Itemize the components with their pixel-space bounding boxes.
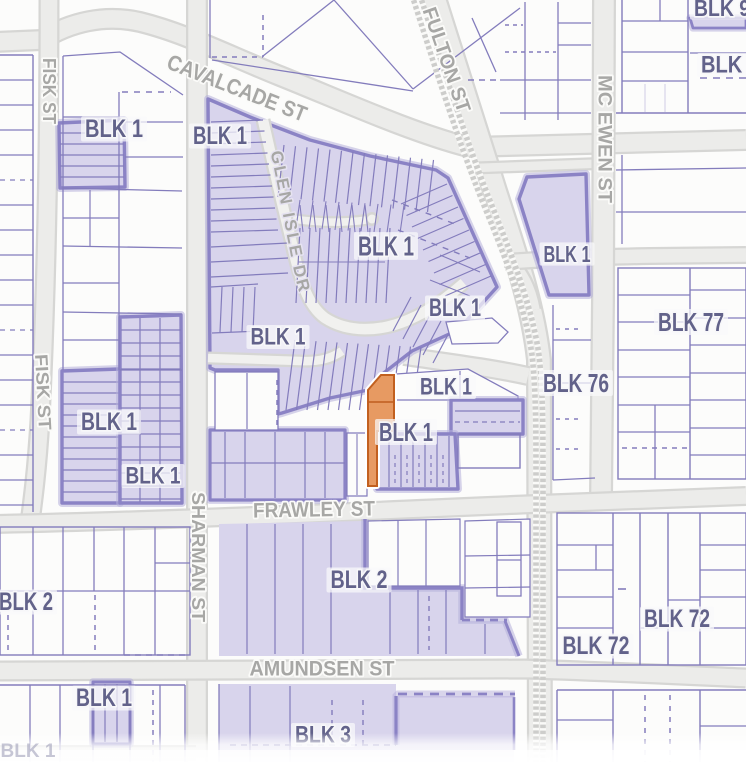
svg-text:BLK 1: BLK 1 <box>1 741 56 762</box>
svg-text:BLK 72: BLK 72 <box>644 605 710 633</box>
svg-text:BLK 1: BLK 1 <box>429 294 481 322</box>
svg-text:BLK 1: BLK 1 <box>420 374 472 401</box>
svg-text:BLK 72: BLK 72 <box>563 632 630 660</box>
svg-text:BLK 2: BLK 2 <box>331 566 388 594</box>
svg-text:BLK 1: BLK 1 <box>379 417 433 447</box>
svg-text:FISK ST: FISK ST <box>31 354 55 431</box>
svg-text:BLK 1: BLK 1 <box>358 231 414 262</box>
svg-text:BLK 1: BLK 1 <box>544 241 591 267</box>
svg-text:BLK 1: BLK 1 <box>251 324 306 351</box>
svg-text:BLK 77: BLK 77 <box>658 307 724 337</box>
svg-text:BLK 2: BLK 2 <box>0 588 53 616</box>
svg-text:MC EWEN ST: MC EWEN ST <box>594 75 615 203</box>
svg-text:BLK 76: BLK 76 <box>543 368 609 398</box>
svg-text:AMUNDSEN ST: AMUNDSEN ST <box>250 658 395 681</box>
svg-text:BLK 1: BLK 1 <box>126 463 181 490</box>
svg-text:BLK 1: BLK 1 <box>193 122 247 150</box>
svg-text:BLK 1: BLK 1 <box>81 408 137 436</box>
svg-text:BLK 9: BLK 9 <box>694 0 746 21</box>
svg-text:FRAWLEY ST: FRAWLEY ST <box>253 497 376 522</box>
svg-text:BLK 9: BLK 9 <box>701 52 746 79</box>
svg-text:FISK ST: FISK ST <box>39 58 59 124</box>
svg-text:BLK 1: BLK 1 <box>76 684 132 712</box>
svg-text:BLK 1: BLK 1 <box>85 115 143 143</box>
svg-text:SHARMAN ST: SHARMAN ST <box>188 492 208 622</box>
